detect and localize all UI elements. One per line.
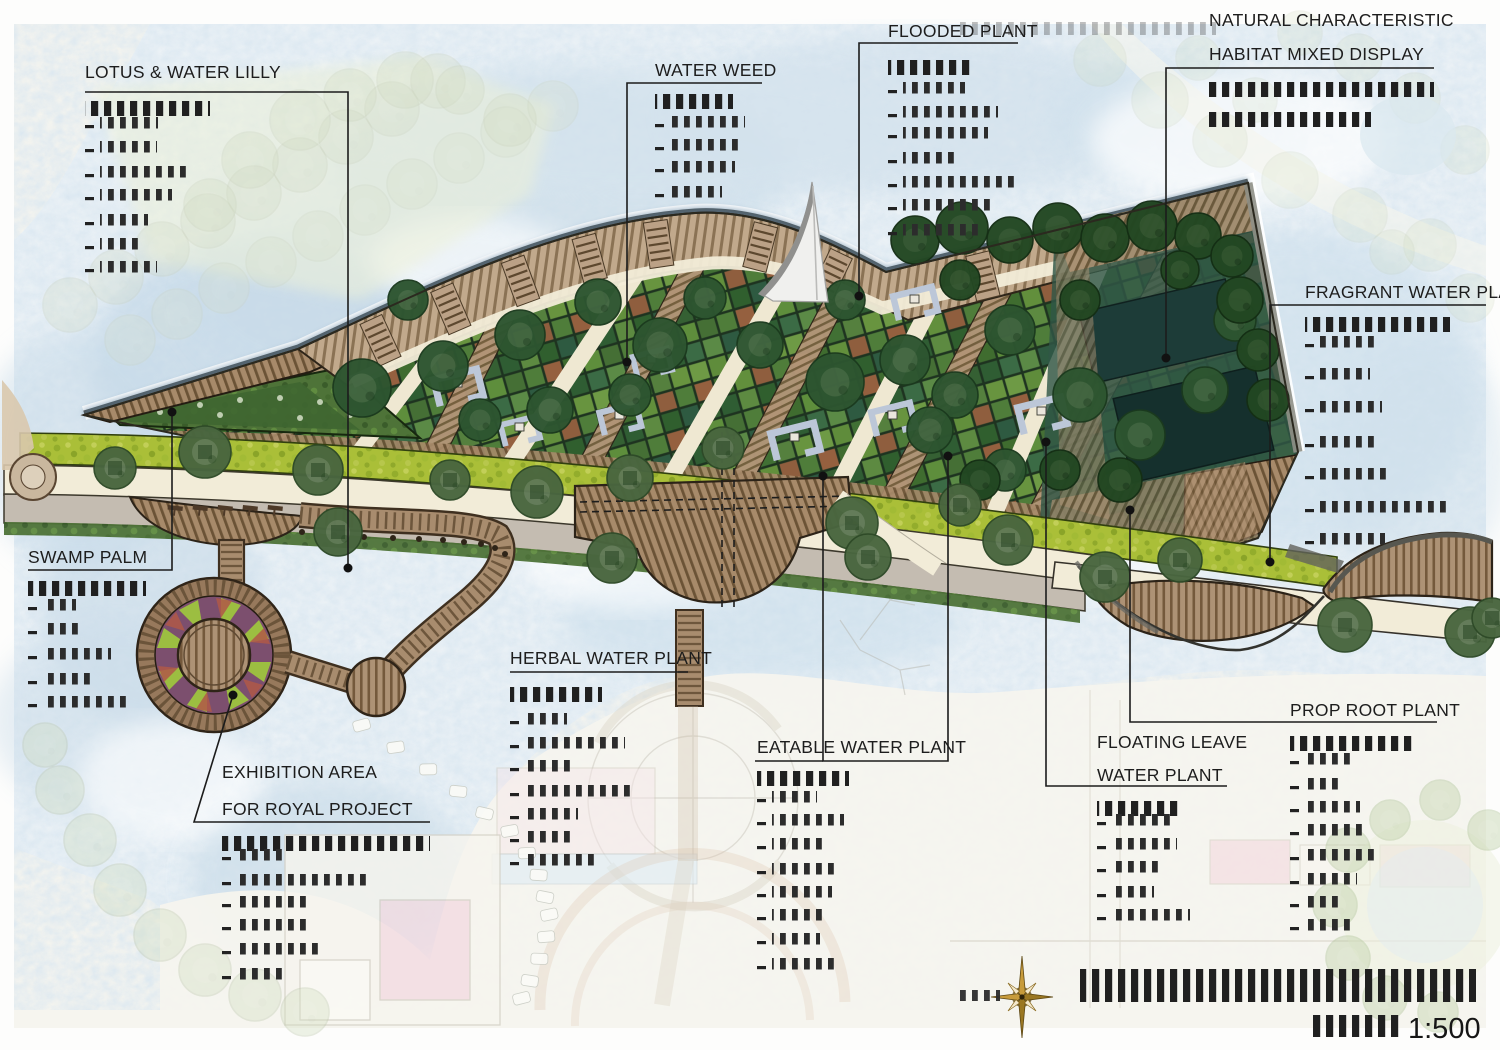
svg-text:NATURAL CHARACTERISTIC: NATURAL CHARACTERISTIC [1209,10,1454,30]
svg-text:HERBAL WATER PLANT: HERBAL WATER PLANT [510,648,712,668]
svg-text:SWAMP PALM: SWAMP PALM [28,547,147,567]
svg-text:FOR ROYAL PROJECT: FOR ROYAL PROJECT [222,799,413,819]
svg-text:FLOATING LEAVE: FLOATING LEAVE [1097,732,1247,752]
svg-text:1:500: 1:500 [1408,1013,1481,1045]
svg-text:PROP ROOT PLANT: PROP ROOT PLANT [1290,700,1460,720]
svg-text:FRAGRANT WATER PLANT: FRAGRANT WATER PLANT [1305,282,1500,302]
svg-text:WATER PLANT: WATER PLANT [1097,765,1223,785]
svg-text:EATABLE WATER PLANT: EATABLE WATER PLANT [757,737,966,757]
svg-text:FLOODED PLANT: FLOODED PLANT [888,21,1038,41]
svg-text:WATER WEED: WATER WEED [655,60,777,80]
svg-text:LOTUS & WATER LILLY: LOTUS & WATER LILLY [85,62,281,82]
svg-text:HABITAT MIXED DISPLAY: HABITAT MIXED DISPLAY [1209,44,1424,64]
svg-text:EXHIBITION AREA: EXHIBITION AREA [222,762,377,782]
